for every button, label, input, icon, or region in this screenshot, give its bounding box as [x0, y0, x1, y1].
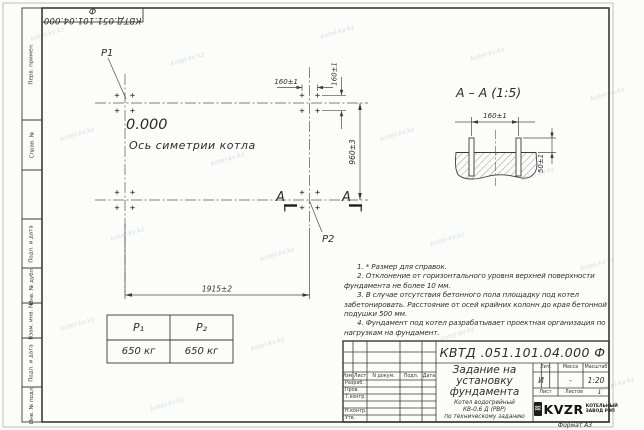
tb-header-ndokum: N докум.	[367, 372, 400, 380]
dim-section-bolt-spacing: 160±1	[483, 112, 507, 120]
note-2: 2. Отклонение от горизонтального уровня …	[344, 271, 608, 290]
section-view-title: А – А (1:5)	[455, 85, 521, 100]
tb-role-nkontr: Н.контр.	[345, 409, 366, 414]
note-1: 1. * Размер для справок.	[344, 262, 608, 271]
loads-table-value-p2: 650 кг	[170, 340, 233, 363]
tb-scale-header: Масштаб	[583, 363, 609, 372]
tb-header-list: Лист	[353, 372, 367, 380]
dim-bolt-spacing-y: 160±1	[331, 62, 339, 86]
frame-cell-inv-dubl: Инв. № дубл.	[22, 268, 42, 303]
section-mark-a-left: А	[275, 190, 285, 205]
load-p2-label: P2	[322, 234, 334, 245]
format-note: Формат А3	[540, 422, 610, 429]
note-4: 4. Фундамент под котел разрабатывает про…	[344, 318, 608, 337]
section-mark-a-right: А	[341, 190, 351, 205]
tb-role-razrab: Разраб.	[345, 381, 364, 386]
frame-cell-label: Подп. и дата	[29, 344, 35, 381]
section-view: А – А (1:5) 160±1 50±1	[455, 85, 556, 186]
company-logo-word: KVZR	[544, 402, 584, 417]
tb-sheet-label: Лист	[533, 388, 558, 396]
title-block-designation: КВТД .051.101.04.000 Ф	[436, 343, 609, 361]
dim-foundation-width: 1915±2	[202, 285, 232, 294]
tb-header-podp: Подп.	[400, 372, 422, 380]
symmetry-axis-label: Ось симетрии котла	[129, 139, 256, 152]
tb-lit-header: Лит.	[533, 363, 558, 372]
frame-cell-label: Взам. инв. №	[29, 302, 35, 339]
frame-cell-label: Перв. примен.	[29, 43, 35, 84]
tb-role-prov: Пров.	[345, 388, 359, 393]
tb-sheets-value: 1	[590, 388, 609, 396]
plan-view: P1 P2 0.000 Ось симетрии котла 1915±2 96…	[95, 48, 368, 299]
company-name: КОТЕЛЬНЫЙ ЗАВОД РЭП	[586, 404, 618, 414]
tb-header-data: Дата	[422, 372, 436, 380]
frame-cell-label: Справ. №	[29, 132, 35, 159]
tb-title-line1: Задание на	[436, 364, 533, 375]
company-logo-icon: ≋	[534, 402, 542, 416]
frame-cell-sprav-n: Справ. №	[22, 120, 42, 170]
frame-cell-perv-primen: Перв. примен.	[22, 8, 42, 120]
frame-cell-podp-data-1: Подп. и дата	[22, 219, 42, 268]
elevation-label: 0.000	[126, 117, 168, 133]
tb-header-izm: Изм.	[343, 372, 353, 380]
tb-role-tkontr: Т.контр.	[345, 395, 366, 400]
company-logo-block: ≋ KVZR КОТЕЛЬНЫЙ ЗАВОД РЭП	[534, 397, 608, 421]
top-designation-stamp: КВТД.051.101.04.000 Ф	[42, 8, 143, 22]
note-3: 3. В случае отсутствия бетонного пола пл…	[344, 290, 608, 318]
loads-table-header-p1: P₁	[107, 315, 170, 340]
concrete-pad	[456, 153, 537, 180]
company-name-line2: ЗАВОД РЭП	[586, 409, 618, 414]
tb-sheets-label: Листов	[558, 388, 590, 396]
loads-table-value-p1: 650 кг	[107, 340, 170, 363]
tb-title-line2: установку	[436, 375, 533, 386]
frame-cell-label: Подп. и дата	[29, 225, 35, 262]
tb-role-utv: Утв.	[345, 416, 355, 421]
notes-block: 1. * Размер для справок. 2. Отклонение о…	[344, 262, 608, 337]
frame-cell-vzam-inv: Взам. инв. №	[22, 303, 42, 338]
loads-table-header-p2: P₂	[170, 315, 233, 340]
dim-bolt-protrusion: 50±1	[537, 154, 545, 173]
anchor-bolt-right	[516, 138, 521, 176]
tb-subtitle-line1: Котел водогрейный	[436, 399, 533, 406]
frame-cell-inv-podl: Инв. № подл.	[22, 387, 42, 422]
tb-subtitle-line3: по техническому заданию	[436, 413, 533, 420]
frame-cell-label: Инв. № подл.	[29, 386, 35, 424]
load-p1-label: P1	[101, 48, 113, 59]
tb-title-line3: фундамента	[436, 386, 533, 397]
tb-subtitle-line2: КВ-0,6 Д (РВР)	[436, 406, 533, 413]
tb-mass-value: -	[558, 372, 583, 388]
tb-mass-header: Масса	[558, 363, 583, 372]
frame-cell-podp-data-2: Подп. и дата	[22, 338, 42, 387]
dim-foundation-height: 960±3	[348, 139, 357, 165]
anchor-bolt-left	[469, 138, 474, 176]
frame-cell-label: Инв. № дубл.	[29, 267, 35, 305]
dim-bolt-spacing-x: 160±1	[274, 78, 298, 86]
drawing-sheet: kotel-kv.kz kotel-kv.kz kotel-kv.kz kote…	[0, 0, 644, 430]
tb-lit-value: И	[533, 372, 549, 388]
tb-scale-value: 1:20	[583, 372, 609, 388]
